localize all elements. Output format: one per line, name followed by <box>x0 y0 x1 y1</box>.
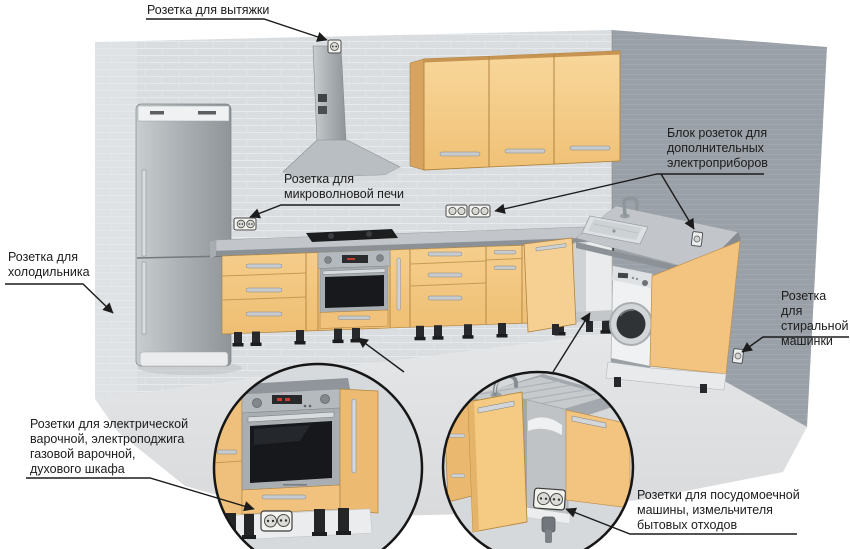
built-in-oven <box>318 250 390 329</box>
outlet-washing-machine <box>732 348 744 363</box>
back-wall-left-light <box>95 41 137 399</box>
label-washer-outlet: Розетка для стиральной машинки <box>781 289 850 349</box>
washing-machine <box>610 266 652 370</box>
label-cooktop-oven-outlets: Розетки для электрической варочной, элек… <box>30 417 188 477</box>
label-fridge-outlet: Розетка для холодильника <box>8 250 90 280</box>
label-hood-outlet: Розетка для вытяжки <box>147 3 269 18</box>
outlet-microwave <box>234 218 256 230</box>
outlet-hood <box>328 40 341 53</box>
label-dishwasher-outlets: Розетки для посудомоечной машины, измель… <box>637 488 800 533</box>
outlet-corner-wall <box>691 231 703 246</box>
wall-cabinets <box>410 51 620 170</box>
label-microwave-outlet: Розетка для микроволновой печи <box>284 172 404 202</box>
leader-hood <box>146 19 327 40</box>
outlet-dishwasher <box>533 488 565 510</box>
label-appliance-block: Блок розеток для дополнительных электроп… <box>667 126 768 171</box>
outlet-oven-plinth <box>261 511 292 531</box>
kitchen-wiring-diagram: Розетка для вытяжки Розетка для холодиль… <box>0 0 850 549</box>
